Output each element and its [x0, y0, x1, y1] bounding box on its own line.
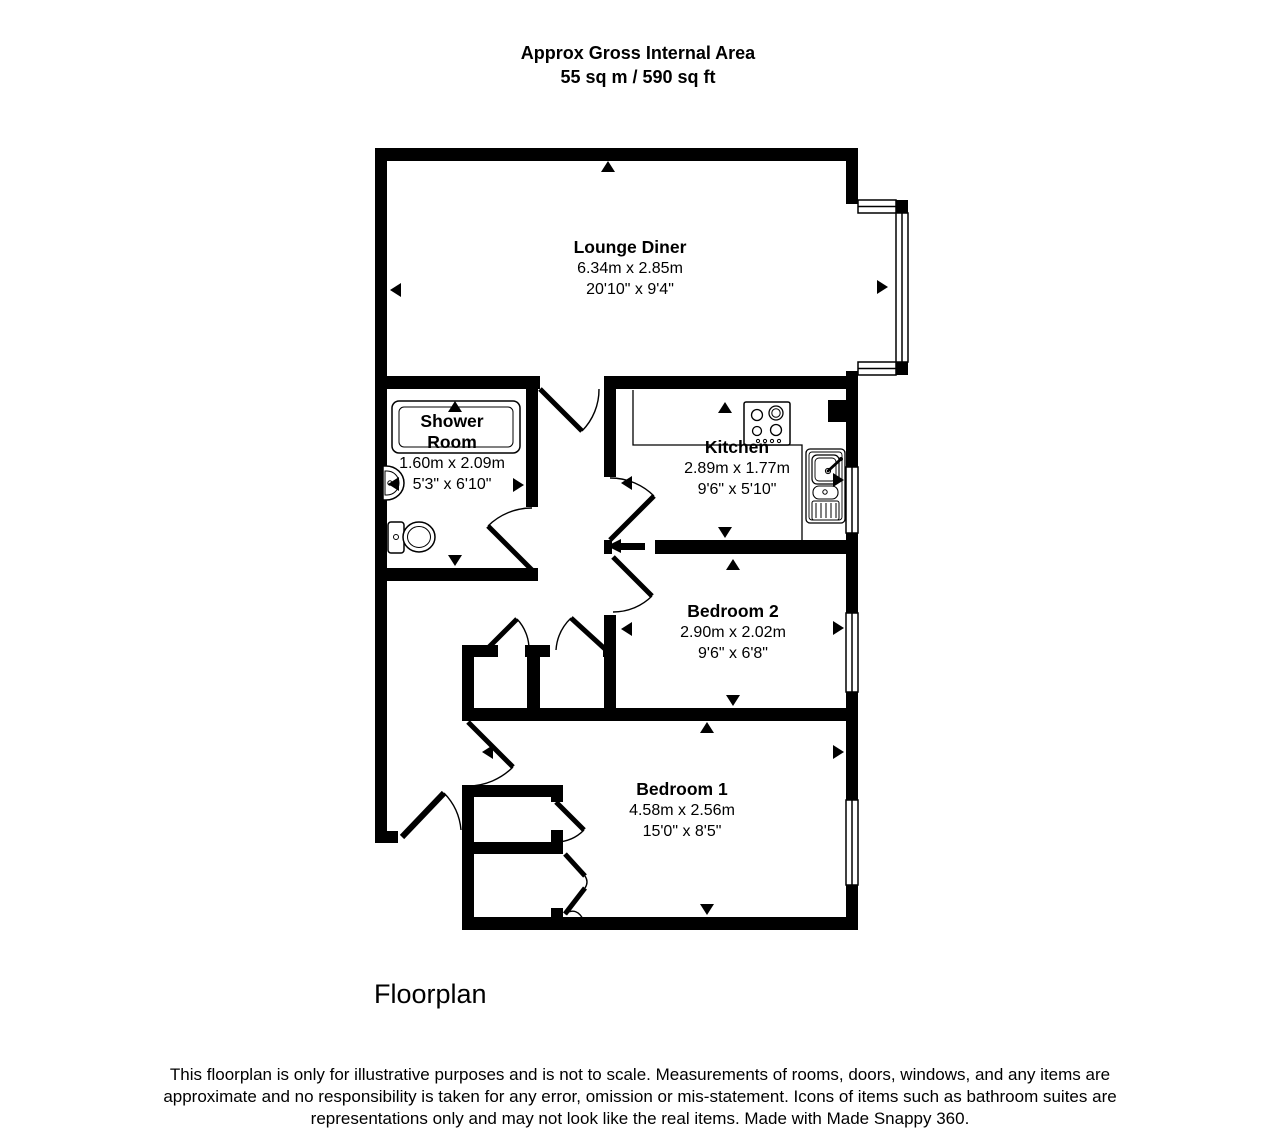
- room-lounge-label: Lounge Diner 6.34m x 2.85m 20'10" x 9'4": [530, 237, 730, 300]
- lounge-door: [540, 389, 599, 431]
- room-name: Kitchen: [637, 437, 837, 458]
- room-size-metric: 2.89m x 1.77m: [637, 458, 837, 479]
- bedroom1-window: [846, 800, 858, 885]
- entrance-door: [402, 793, 461, 837]
- arrow-right-icon: [833, 745, 844, 759]
- arrow-up-icon: [601, 161, 615, 172]
- floorplan-page: Approx Gross Internal Area 55 sq m / 590…: [0, 0, 1280, 1147]
- room-shower-label: Shower Room 1.60m x 2.09m 5'3" x 6'10": [377, 411, 527, 495]
- room-size-metric: 1.60m x 2.09m: [377, 453, 527, 474]
- room-kitchen-label: Kitchen 2.89m x 1.77m 9'6" x 5'10": [637, 437, 837, 500]
- floorplan-caption: Floorplan: [374, 979, 487, 1010]
- room-size-imperial: 9'6" x 6'8": [633, 643, 833, 664]
- bedroom2-window: [846, 613, 858, 692]
- shower-room-door: [488, 508, 532, 570]
- room-name: Bedroom 1: [582, 779, 782, 800]
- room-bedroom2-label: Bedroom 2 2.90m x 2.02m 9'6" x 6'8": [633, 601, 833, 664]
- room-name: Shower Room: [406, 411, 498, 453]
- arrow-down-icon: [726, 695, 740, 706]
- arrow-left-icon: [482, 745, 493, 759]
- arrow-right-icon: [877, 280, 888, 294]
- wardrobe-door-lower: [565, 854, 587, 921]
- hall-cupboard-door-right: [556, 618, 605, 650]
- disclaimer-text: This floorplan is only for illustrative …: [160, 1064, 1120, 1130]
- arrow-right-icon: [833, 621, 844, 635]
- arrow-down-icon: [448, 555, 462, 566]
- arrow-up-icon: [700, 722, 714, 733]
- arrow-left-icon: [390, 283, 401, 297]
- floorplan-drawing: [0, 0, 1280, 1147]
- plan-title-line1: Approx Gross Internal Area: [338, 41, 938, 65]
- kitchen-window: [846, 467, 858, 533]
- room-name: Bedroom 2: [633, 601, 833, 622]
- room-size-imperial: 20'10" x 9'4": [530, 279, 730, 300]
- room-bedroom1-label: Bedroom 1 4.58m x 2.56m 15'0" x 8'5": [582, 779, 782, 842]
- room-name: Lounge Diner: [530, 237, 730, 258]
- room-size-metric: 4.58m x 2.56m: [582, 800, 782, 821]
- arrow-up-icon: [726, 559, 740, 570]
- room-size-metric: 2.90m x 2.02m: [633, 622, 833, 643]
- room-size-imperial: 9'6" x 5'10": [637, 479, 837, 500]
- arrow-down-icon: [700, 904, 714, 915]
- toilet-icon: [388, 522, 435, 553]
- hall-cupboard-door-left: [486, 619, 529, 650]
- arrow-left-icon: [621, 476, 632, 490]
- room-size-imperial: 5'3" x 6'10": [377, 474, 527, 495]
- room-size-metric: 6.34m x 2.85m: [530, 258, 730, 279]
- room-size-imperial: 15'0" x 8'5": [582, 821, 782, 842]
- plan-title-line2: 55 sq m / 590 sq ft: [338, 65, 938, 89]
- arrow-down-icon: [718, 527, 732, 538]
- arrow-left-icon: [621, 622, 632, 636]
- arrow-up-icon: [718, 402, 732, 413]
- plan-title: Approx Gross Internal Area 55 sq m / 590…: [338, 41, 938, 89]
